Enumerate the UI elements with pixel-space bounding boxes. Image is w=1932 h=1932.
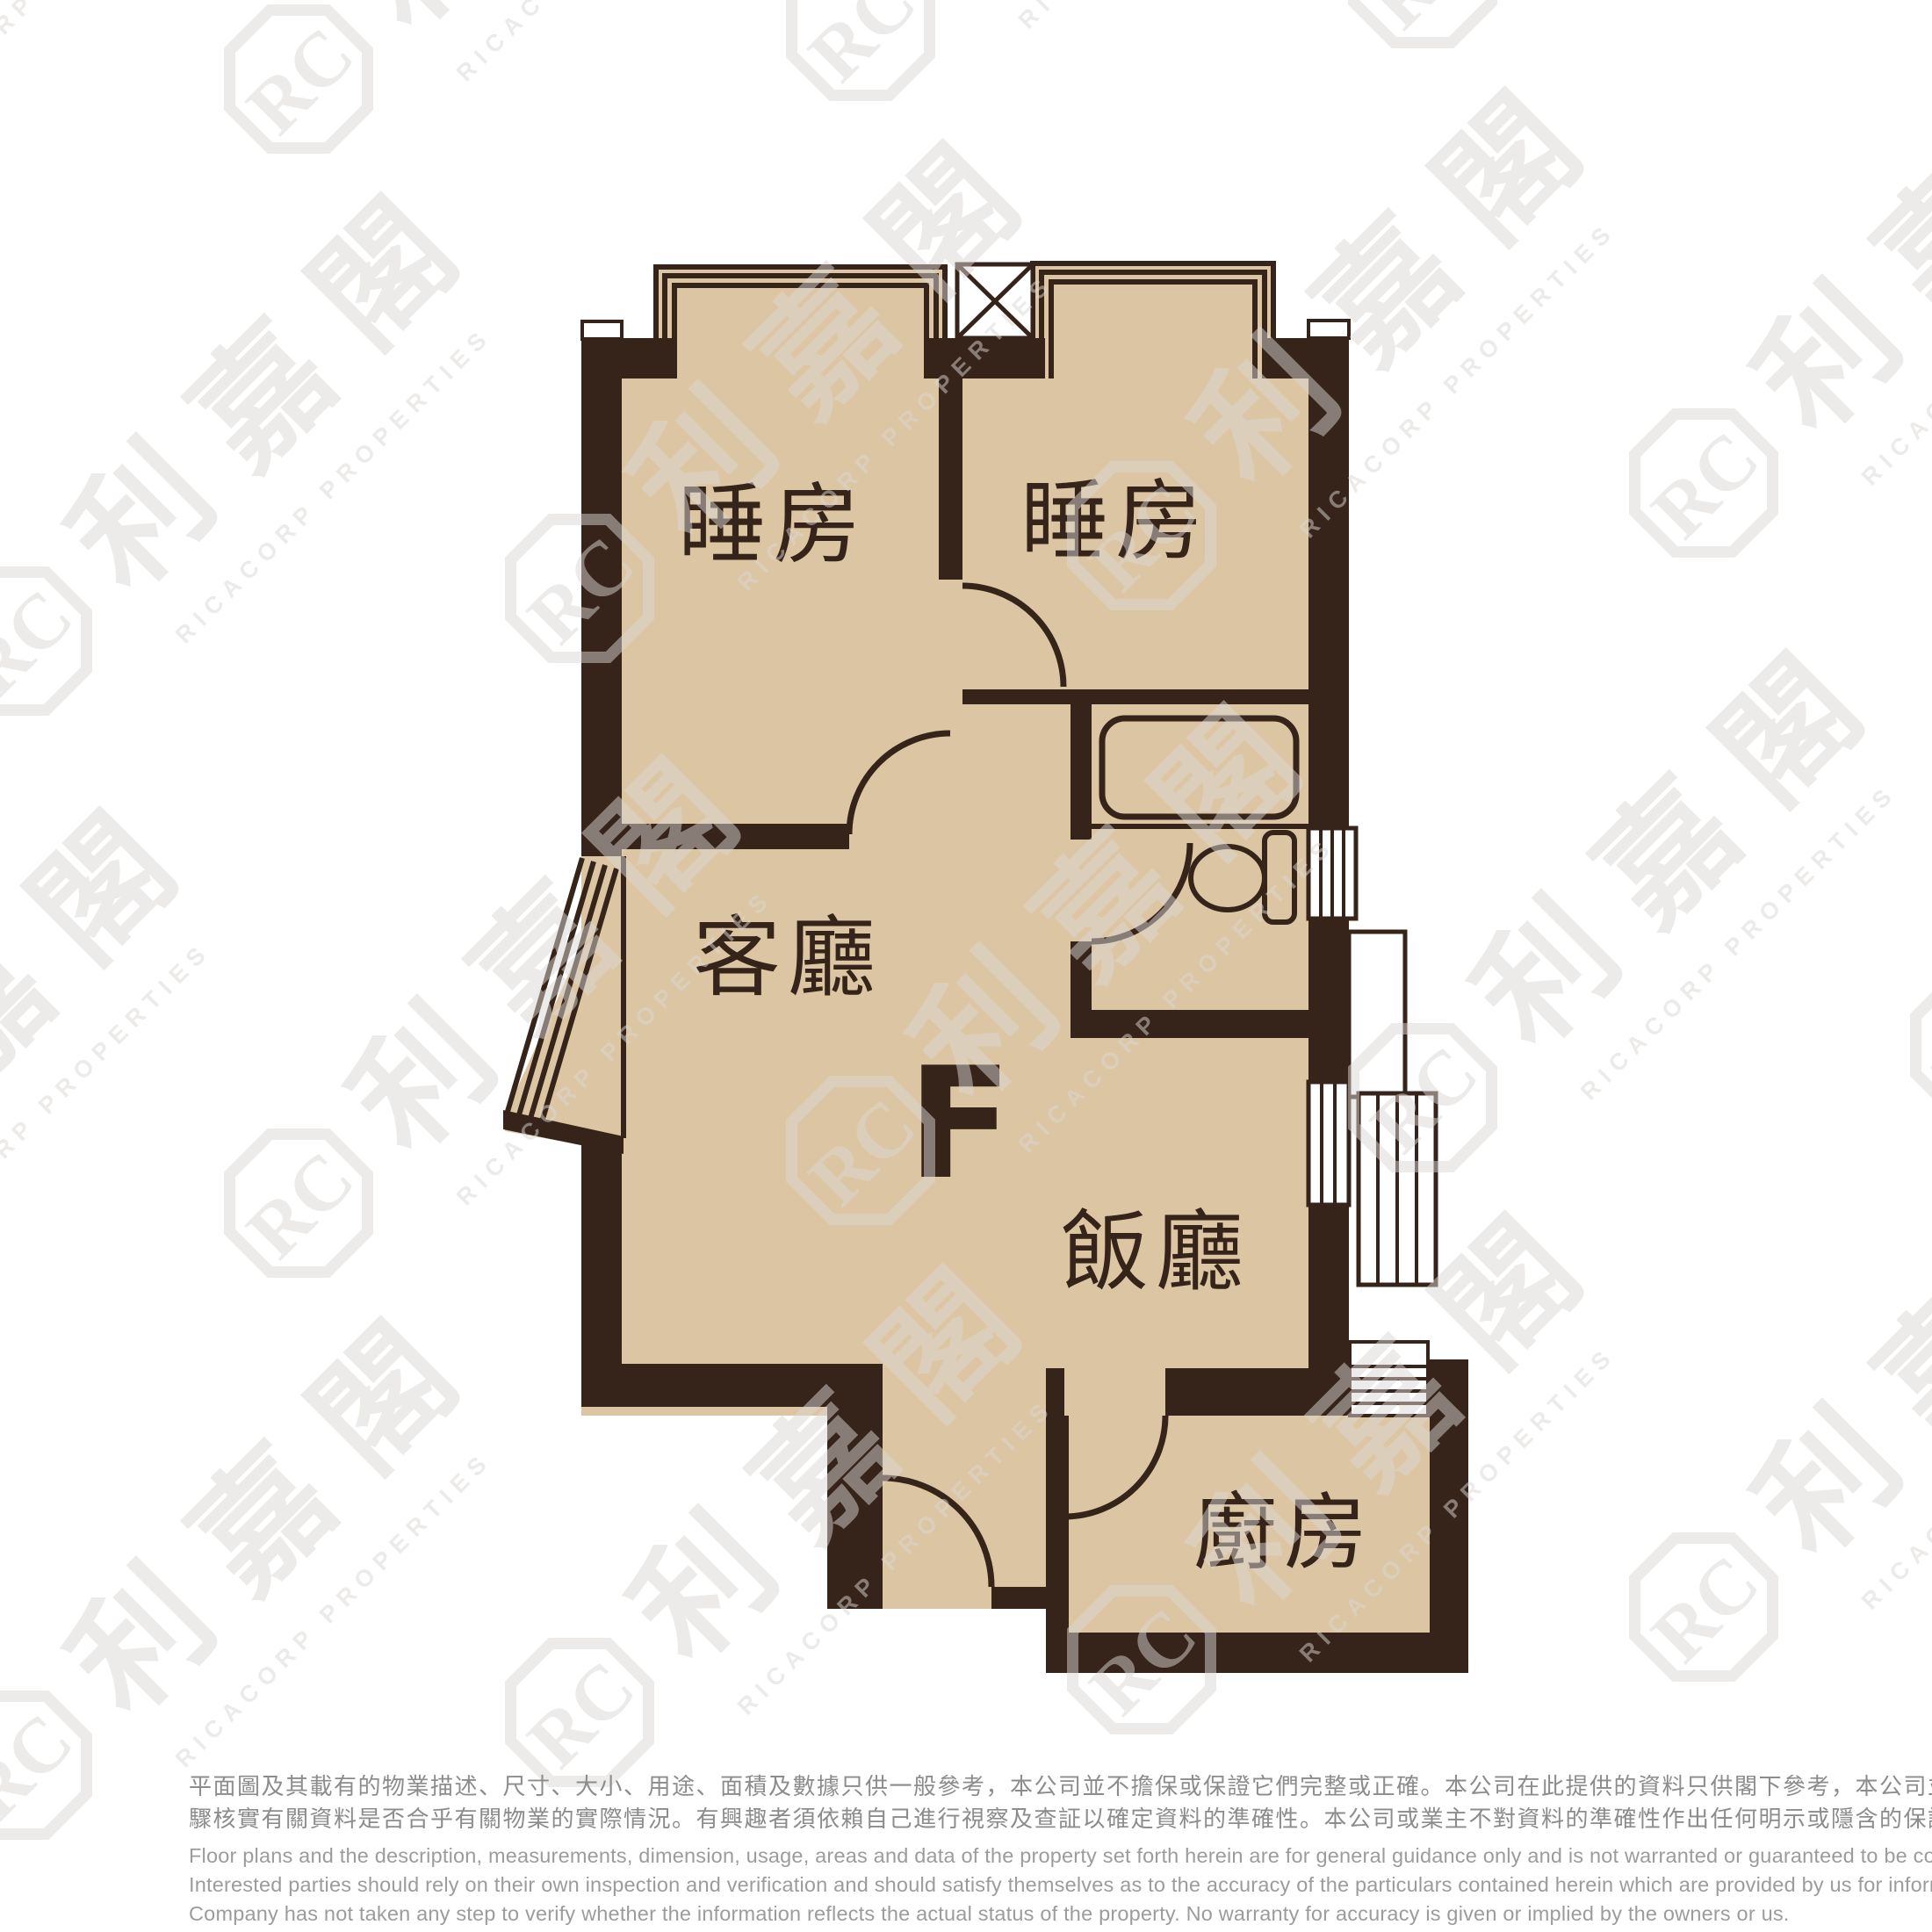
watermark-cjk-text: 利嘉閣 <box>1731 1116 1932 1582</box>
disclaimer-en-line2: Interested parties should rely on their … <box>189 1873 1932 1897</box>
disclaimer-en-line1: Floor plans and the description, measure… <box>189 1844 1932 1868</box>
watermark-tile: RC利嘉閣RICACORP PROPERTIES <box>1604 1116 1932 1746</box>
watermark-tile: RC利嘉閣RICACORP PROPERTIES <box>1604 0 1932 621</box>
wall-bathroom-bottom <box>1071 1010 1308 1038</box>
ac-box-left <box>582 321 622 339</box>
wall-right-middle <box>1308 919 1349 1082</box>
disclaimer-cn-line1: 平面圖及其載有的物業描述、尺寸、大小、用途、面積及數據只供一般參考，本公司並不擔… <box>189 1769 1932 1801</box>
watermark-tile: RC利嘉閣RICACORP PROPERTIES <box>1323 0 1932 112</box>
floor-plan-canvas: 睡房 睡房 客廳 飯廳 廚房 F RC利嘉閣RICACORP PROPERTIE… <box>0 0 1932 1932</box>
wall-bathroom-left-upper <box>1071 704 1092 840</box>
watermark-en-text: RICACORP PROPERTIES <box>0 0 216 139</box>
watermark-en-text: RICACORP PROPERTIES <box>451 0 778 86</box>
dining-window <box>1308 1082 1349 1205</box>
watermark-cjk-text: 利嘉閣 <box>1731 0 1932 458</box>
watermark-octagon-logo-icon <box>1887 0 1932 18</box>
watermark-tile: RC利嘉閣RICACORP PROPERTIES <box>199 0 829 217</box>
wall-between-bedrooms <box>939 378 962 580</box>
watermark-en-text: RICACORP PROPERTIES <box>1013 0 1340 33</box>
dining-window-frame <box>1308 1082 1349 1205</box>
watermark-tile: RC利嘉閣RICACORP PROPERTIES <box>1323 607 1932 1236</box>
watermark-cjk-text: 利嘉閣 <box>326 0 792 54</box>
watermark-tile: RC利嘉閣RICACORP PROPERTIES <box>0 765 267 1395</box>
watermark-tile: RC利嘉閣RICACORP PROPERTIES <box>1885 0 1932 59</box>
disclaimer-en-line3: Company has not taken any step to verify… <box>189 1902 1790 1926</box>
watermark-cjk-text: 利嘉閣 <box>0 765 230 1231</box>
watermark-tile: RC利嘉閣RICACORP PROPERTIES <box>0 0 267 270</box>
wall-entry-bottom <box>991 1587 1046 1609</box>
watermark-cjk-text: 利嘉閣 <box>888 0 1354 2</box>
watermark-tile: RC利嘉閣RICACORP PROPERTIES <box>1885 554 1932 1184</box>
disclaimer-cn-line2: 驟核實有關資料是否合乎有關物業的實際情況。有興趣者須依賴自己進行視察及查証以確定… <box>189 1801 1932 1834</box>
floor-plan-page: 睡房 睡房 客廳 飯廳 廚房 F RC利嘉閣RICACORP PROPERTIE… <box>0 0 1932 1932</box>
dining-room-label: 飯廳 <box>1061 1204 1251 1301</box>
watermark-cjk-text: 利嘉閣 <box>0 0 230 107</box>
watermark-octagon-logo-icon <box>1887 948 1932 1143</box>
watermark-layer: RC利嘉閣RICACORP PROPERTIESRC利嘉閣RICACORP PR… <box>0 0 1932 1932</box>
watermark-tile: RC利嘉閣RICACORP PROPERTIES <box>761 0 1391 164</box>
watermark-tile: RC利嘉閣RICACORP PROPERTIES <box>0 150 548 780</box>
